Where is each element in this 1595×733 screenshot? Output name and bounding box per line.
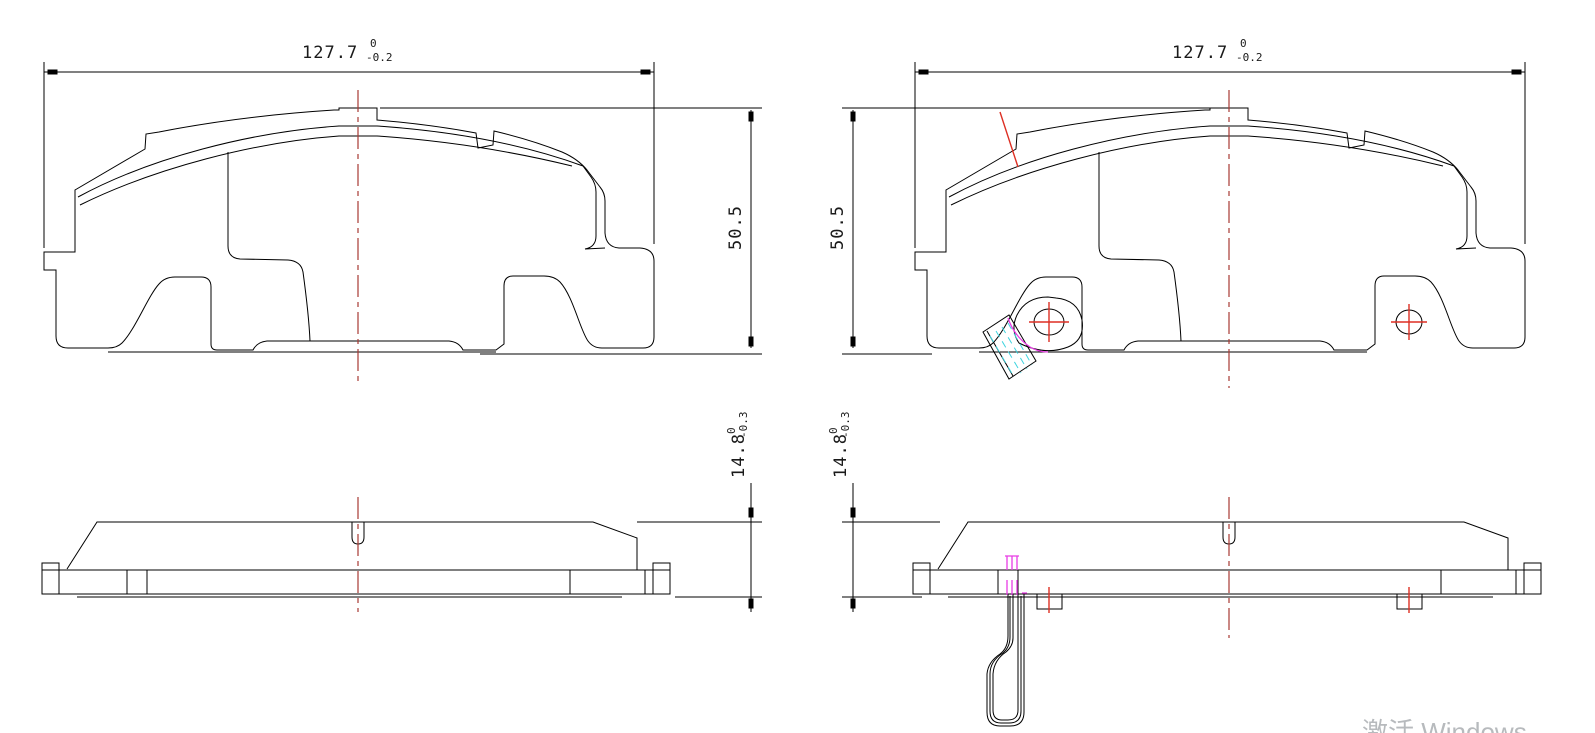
dim-tick [851,112,855,121]
side-magenta-marks [1005,556,1027,595]
indicator-wire-mid [990,596,1021,723]
front-view-right [915,108,1525,352]
dim-tick [919,70,928,74]
dim-tick [749,599,753,608]
dim-thickness-left-value: 14.8 [729,433,749,478]
clip-hatch-cyan [990,323,1032,377]
dim-thickness-left-line [637,483,762,612]
drawing-canvas: 127.7 0 -0.2 127.7 0 -0.2 50.5 50.5 14.8… [0,0,1595,733]
dim-width-right-tol-upper: 0 [1240,37,1247,50]
dim-tick [749,112,753,121]
dim-height-left-line [380,108,762,354]
dim-tick [851,599,855,608]
crosshair-left [1029,302,1069,342]
dim-thickness-right-line [842,483,940,612]
dim-width-right-value: 127.7 [1172,43,1228,63]
dim-height-right-value: 50.5 [828,205,848,250]
dim-width-left-tol-lower: -0.2 [366,51,393,64]
dim-width-left-tol-upper: 0 [370,37,377,50]
dim-tick [749,337,753,346]
dim-thickness-right-value: 14.8 [831,433,851,478]
dimension-lines [44,62,1525,612]
dim-tick [851,508,855,517]
crosshair-right [1391,304,1427,340]
dim-thickness-left-tol-lower: -0.3 [737,412,750,439]
dim-tick [749,508,753,517]
dim-height-left-value: 50.5 [726,205,746,250]
right-side-hardware [987,594,1422,726]
dim-width-right-tol-lower: -0.2 [1236,51,1263,64]
cad-drawing: 127.7 0 -0.2 127.7 0 -0.2 50.5 50.5 14.8… [0,0,1595,733]
dim-width-left-value: 127.7 [302,43,358,63]
dimension-texts: 127.7 0 -0.2 127.7 0 -0.2 50.5 50.5 14.8… [302,37,1263,478]
centerlines [358,90,1229,638]
dim-tick [48,70,57,74]
side-view-left [42,522,670,597]
dim-height-right-line [842,108,1212,354]
dim-tick [641,70,650,74]
front-view-left [44,108,654,352]
section-mark-line [1000,112,1018,167]
front-red-marks [1000,112,1427,342]
dim-thickness-right-tol-lower: -0.3 [839,412,852,439]
windows-activation-watermark: 激活 Windows [1362,712,1527,733]
dim-tick [1512,70,1521,74]
dim-tick [851,337,855,346]
